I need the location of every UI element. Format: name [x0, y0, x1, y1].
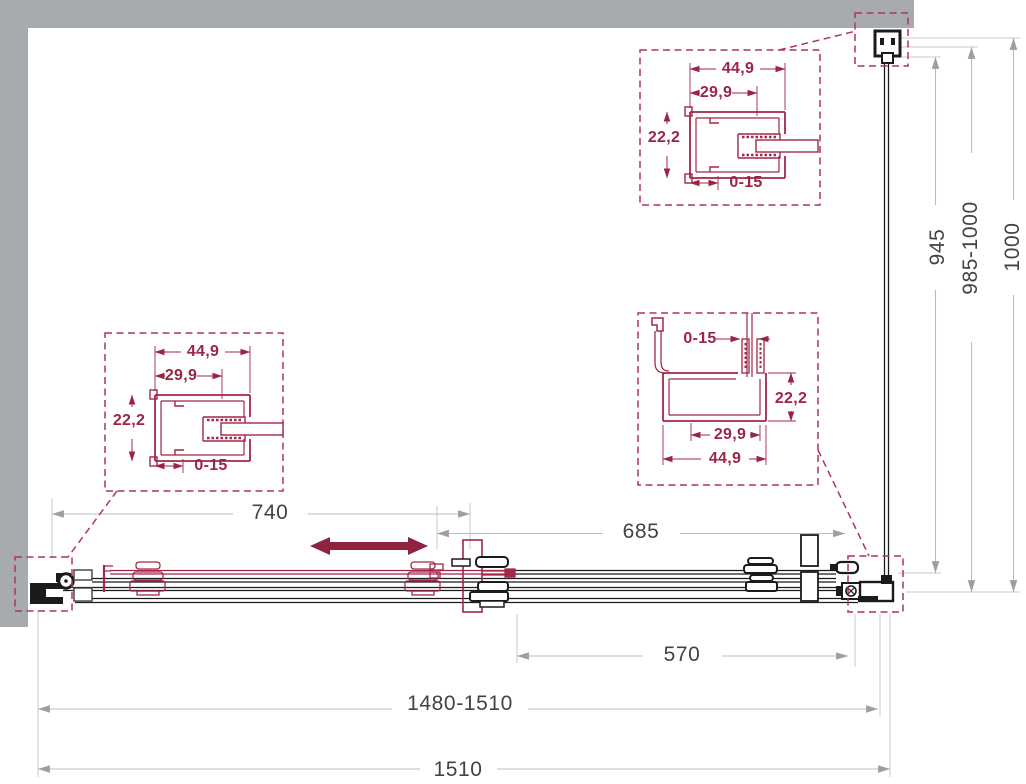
- dim-door-width-label: 740: [252, 501, 289, 525]
- wall-profile-top-right: [875, 31, 900, 63]
- dim-total-width-label: 1510: [433, 758, 482, 782]
- detail-top-adjustment-label: 0-15: [729, 174, 762, 192]
- detail-top-inner-width-label: 29,9: [700, 84, 732, 102]
- technical-drawing-canvas: 740 685 570 1480-1510 1510 945 985-1000 …: [0, 0, 1026, 784]
- callout-boxes: [15, 13, 908, 612]
- detail-left-profile: [132, 346, 283, 473]
- detail-corner-inner-width-label: 29,9: [714, 426, 746, 444]
- detail-left-height-label: 22,2: [113, 412, 145, 430]
- detail-top-outer-width-label: 44,9: [722, 60, 754, 78]
- dim-side-adjustable-depth-label: 985-1000: [959, 201, 983, 295]
- detail-top-dims: [667, 63, 785, 190]
- return-glass-panel: [885, 60, 889, 577]
- leader-top: [779, 31, 856, 50]
- extension-lines: [38, 38, 1020, 777]
- leader-left: [68, 491, 117, 557]
- leader-corner: [818, 450, 869, 556]
- detail-left-dims: [132, 346, 250, 473]
- detail-corner-height-label: 22,2: [775, 390, 807, 408]
- dim-fixed-section-label: 685: [623, 520, 660, 544]
- detail-top-profile: [667, 63, 818, 190]
- sliding-door-panel: [104, 540, 515, 612]
- dim-adjustable-width-label: 1480-1510: [407, 692, 513, 716]
- detail-left-adjustment-label: 0-15: [194, 457, 227, 475]
- dim-side-panel-depth-label: 945: [926, 229, 950, 266]
- dim-side-total-depth-label: 1000: [1001, 222, 1025, 271]
- detail-corner-adjustment-label: 0-15: [683, 330, 716, 348]
- slide-direction-arrow-icon: [310, 537, 428, 555]
- detail-top-height-label: 22,2: [648, 129, 680, 147]
- detail-left-inner-width-label: 29,9: [165, 367, 197, 385]
- detail-corner-outer-width-label: 44,9: [709, 450, 741, 468]
- dim-side-section-label: 570: [664, 643, 701, 667]
- drawing-geometry: [0, 0, 1026, 784]
- track-rails: [63, 571, 858, 603]
- corner-assembly: [830, 562, 893, 602]
- detail-left-outer-width-label: 44,9: [187, 343, 219, 361]
- dimension-lines: [38, 38, 1014, 769]
